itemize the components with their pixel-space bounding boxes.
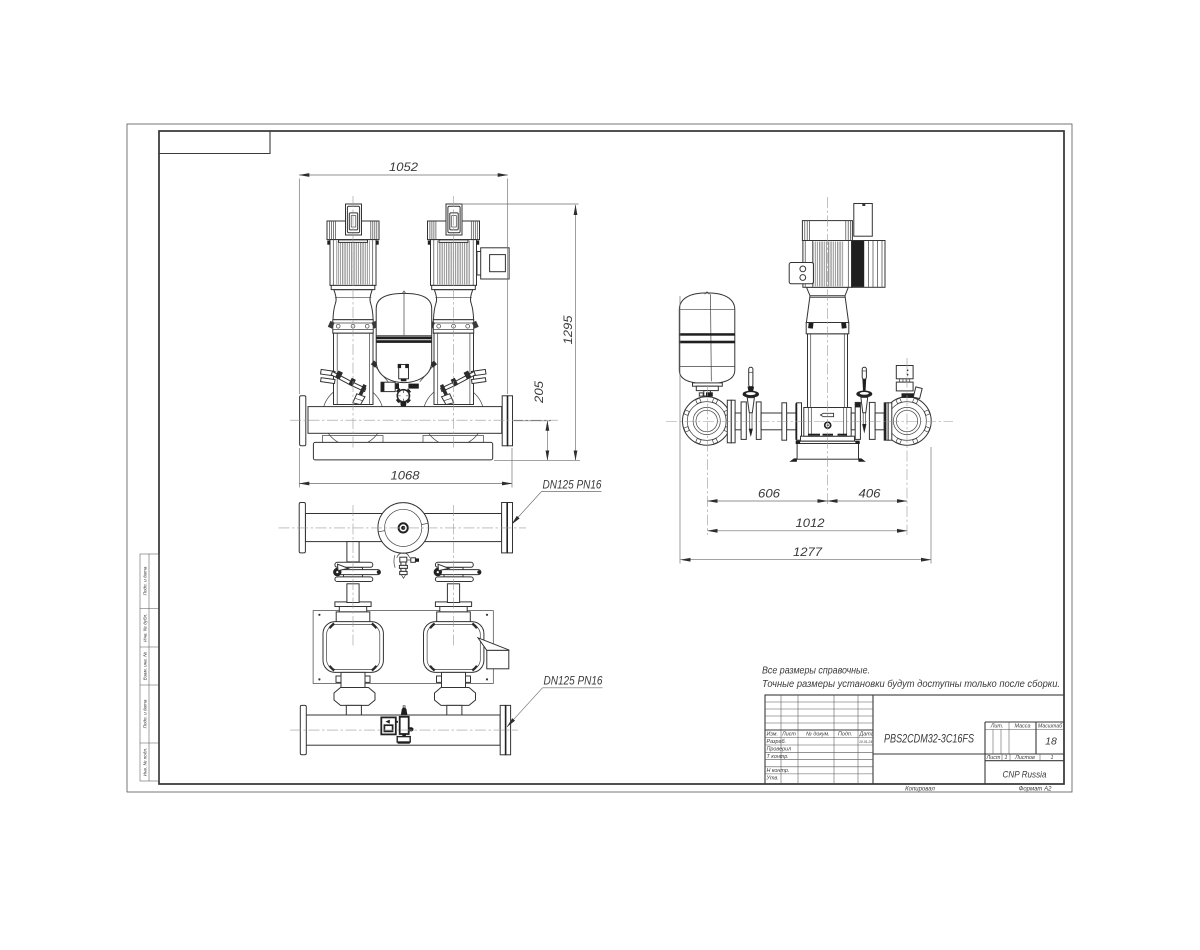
- svg-text:№ докум.: № докум.: [806, 732, 830, 738]
- svg-text:Утв.: Утв.: [766, 775, 779, 781]
- svg-text:Лит.: Лит.: [990, 724, 1004, 730]
- svg-text:Проверил: Проверил: [767, 747, 792, 753]
- svg-text:Листов: Листов: [1014, 755, 1035, 761]
- svg-text:1277: 1277: [793, 545, 823, 559]
- svg-text:Дата: Дата: [859, 732, 874, 738]
- svg-text:Взам. инв. №: Взам. инв. №: [143, 652, 148, 680]
- svg-text:1: 1: [1051, 755, 1054, 761]
- svg-text:1012: 1012: [796, 516, 825, 530]
- svg-text:DN125 PN16: DN125 PN16: [543, 480, 603, 492]
- svg-text:1068: 1068: [391, 469, 420, 483]
- svg-text:205: 205: [532, 381, 546, 404]
- svg-text:Изм.: Изм.: [767, 732, 779, 738]
- svg-text:Масштаб: Масштаб: [1038, 724, 1063, 730]
- svg-text:Лист: Лист: [986, 755, 1001, 761]
- svg-text:Все размеры справочные.: Все размеры справочные.: [762, 666, 870, 677]
- svg-text:1052: 1052: [389, 160, 418, 174]
- svg-text:Подп. и дата: Подп. и дата: [143, 699, 148, 728]
- svg-text:Подп.: Подп.: [838, 732, 852, 738]
- svg-text:Инв. № дубл.: Инв. № дубл.: [143, 614, 148, 642]
- svg-text:10.01.24: 10.01.24: [859, 740, 872, 744]
- svg-text:1: 1: [1005, 755, 1008, 761]
- svg-text:1295: 1295: [561, 315, 575, 344]
- svg-text:CNP Russia: CNP Russia: [1003, 770, 1047, 781]
- svg-text:Лист: Лист: [781, 732, 796, 738]
- svg-text:606: 606: [758, 487, 780, 501]
- svg-text:18: 18: [1045, 736, 1057, 748]
- svg-text:PBS2CDM32-3C16FS: PBS2CDM32-3C16FS: [884, 732, 974, 746]
- svg-text:Точные размеры установки будут: Точные размеры установки будут доступны …: [762, 678, 1060, 690]
- svg-text:Н контр.: Н контр.: [767, 768, 790, 774]
- svg-text:Разраб.: Разраб.: [767, 739, 787, 745]
- svg-text:Подп. и дата: Подп. и дата: [143, 566, 148, 595]
- svg-text:Масса: Масса: [1015, 724, 1031, 730]
- svg-text:Инв. № подл.: Инв. № подл.: [143, 748, 148, 777]
- svg-text:DN125 PN16: DN125 PN16: [544, 676, 604, 688]
- svg-text:Т контр.: Т контр.: [767, 754, 789, 760]
- svg-text:Формат А2: Формат А2: [1019, 787, 1052, 793]
- svg-text:Копировал: Копировал: [905, 787, 935, 793]
- svg-text:406: 406: [859, 487, 881, 501]
